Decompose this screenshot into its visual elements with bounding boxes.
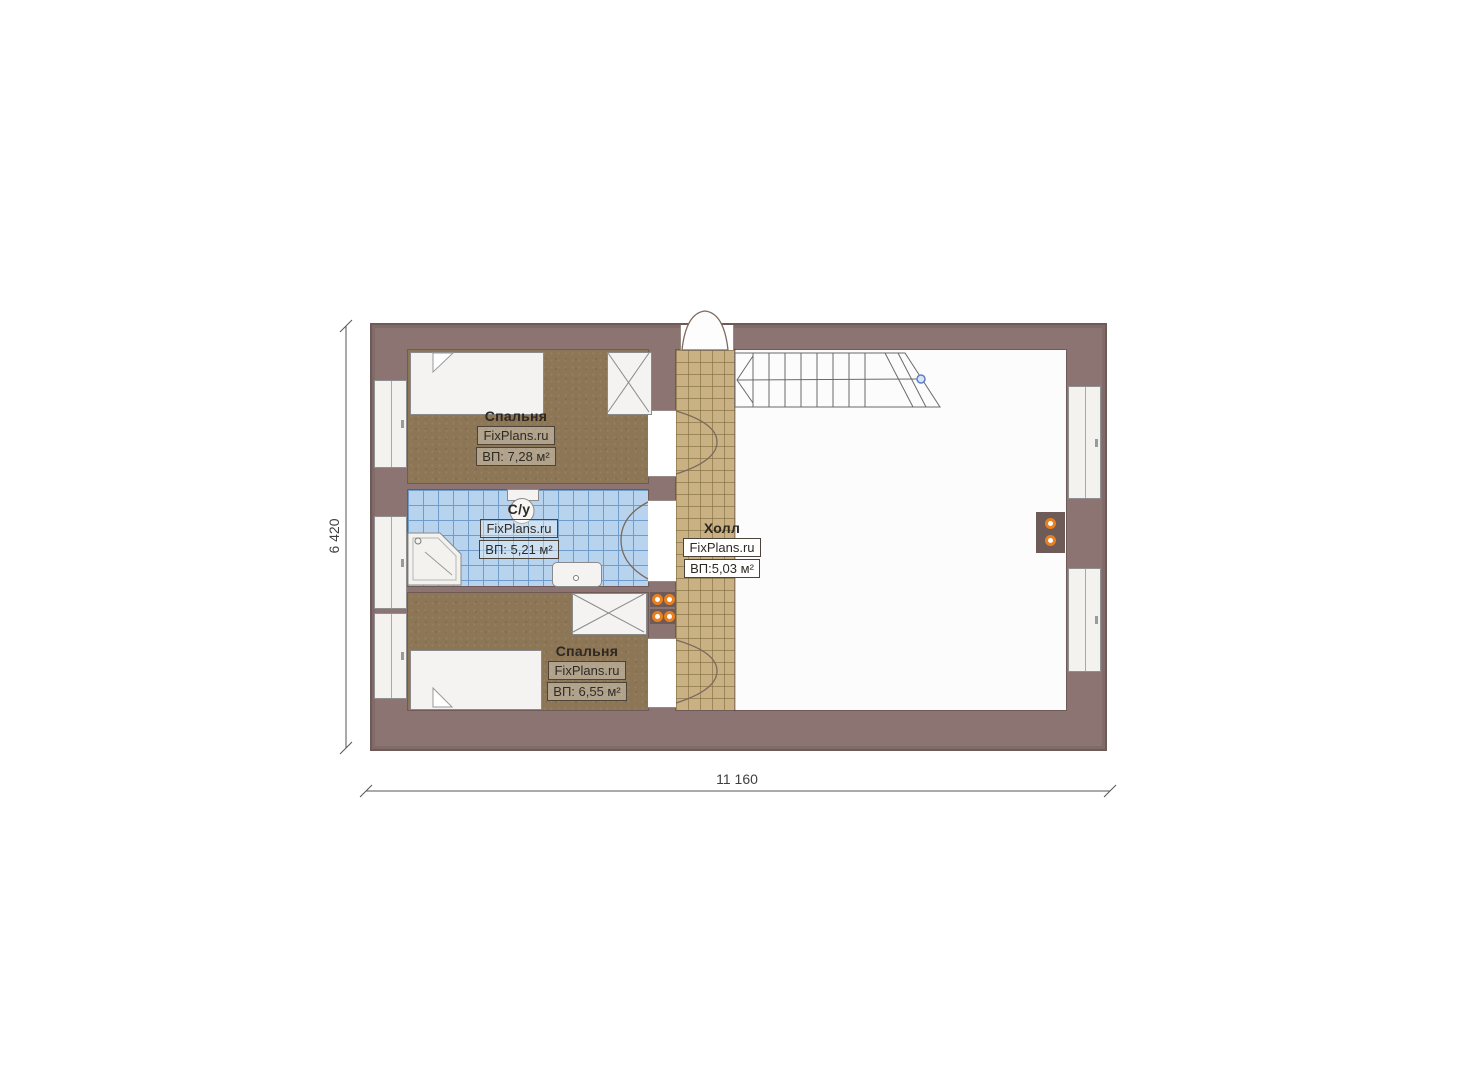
- dimension-height-label: 6 420: [326, 506, 346, 566]
- room-label-hall: Холл FixPlans.ru ВП:5,03 м²: [662, 520, 782, 578]
- radiator-living-room: [1036, 512, 1065, 553]
- room-label-bedroom-top: Спальня FixPlans.ru ВП: 7,28 м²: [446, 408, 586, 466]
- wardrobe-bedroom-bottom: [572, 593, 647, 635]
- room-name: Спальня: [485, 408, 548, 424]
- watermark-label: FixPlans.ru: [548, 661, 625, 680]
- radiator-hall-lower: [650, 609, 676, 624]
- floor-plan-page: Спальня FixPlans.ru ВП: 7,28 м² С/у FixP…: [0, 0, 1474, 1080]
- washbasin: [552, 562, 602, 587]
- window-left-bedroom-bottom: [374, 613, 407, 699]
- room-name: С/у: [508, 501, 531, 517]
- watermark-label: FixPlans.ru: [683, 538, 760, 557]
- living-room-floor: [735, 350, 1066, 710]
- bedroom-top-door-opening: [648, 410, 676, 477]
- dimension-width-label: 11 160: [697, 771, 777, 787]
- area-label: ВП: 7,28 м²: [476, 447, 555, 466]
- bed-bedroom-top: [410, 352, 544, 415]
- wardrobe-bedroom-top: [607, 352, 652, 415]
- window-left-bathroom: [374, 516, 407, 609]
- area-label: ВП: 6,55 м²: [547, 682, 626, 701]
- room-label-bathroom: С/у FixPlans.ru ВП: 5,21 м²: [449, 501, 589, 559]
- room-name: Спальня: [556, 643, 619, 659]
- window-left-bedroom-top: [374, 380, 407, 468]
- toilet-tank: [507, 489, 539, 501]
- watermark-label: FixPlans.ru: [477, 426, 554, 445]
- room-label-bedroom-bottom: Спальня FixPlans.ru ВП: 6,55 м²: [517, 643, 657, 701]
- area-label: ВП: 5,21 м²: [479, 540, 558, 559]
- window-right-upper: [1068, 386, 1101, 499]
- window-right-lower: [1068, 568, 1101, 672]
- entrance-door-opening: [680, 325, 734, 350]
- bathroom-bedroom-wall: [408, 586, 648, 593]
- area-label: ВП:5,03 м²: [684, 559, 760, 578]
- radiator-hall-upper: [650, 592, 676, 607]
- room-name: Холл: [704, 520, 740, 536]
- watermark-label: FixPlans.ru: [480, 519, 557, 538]
